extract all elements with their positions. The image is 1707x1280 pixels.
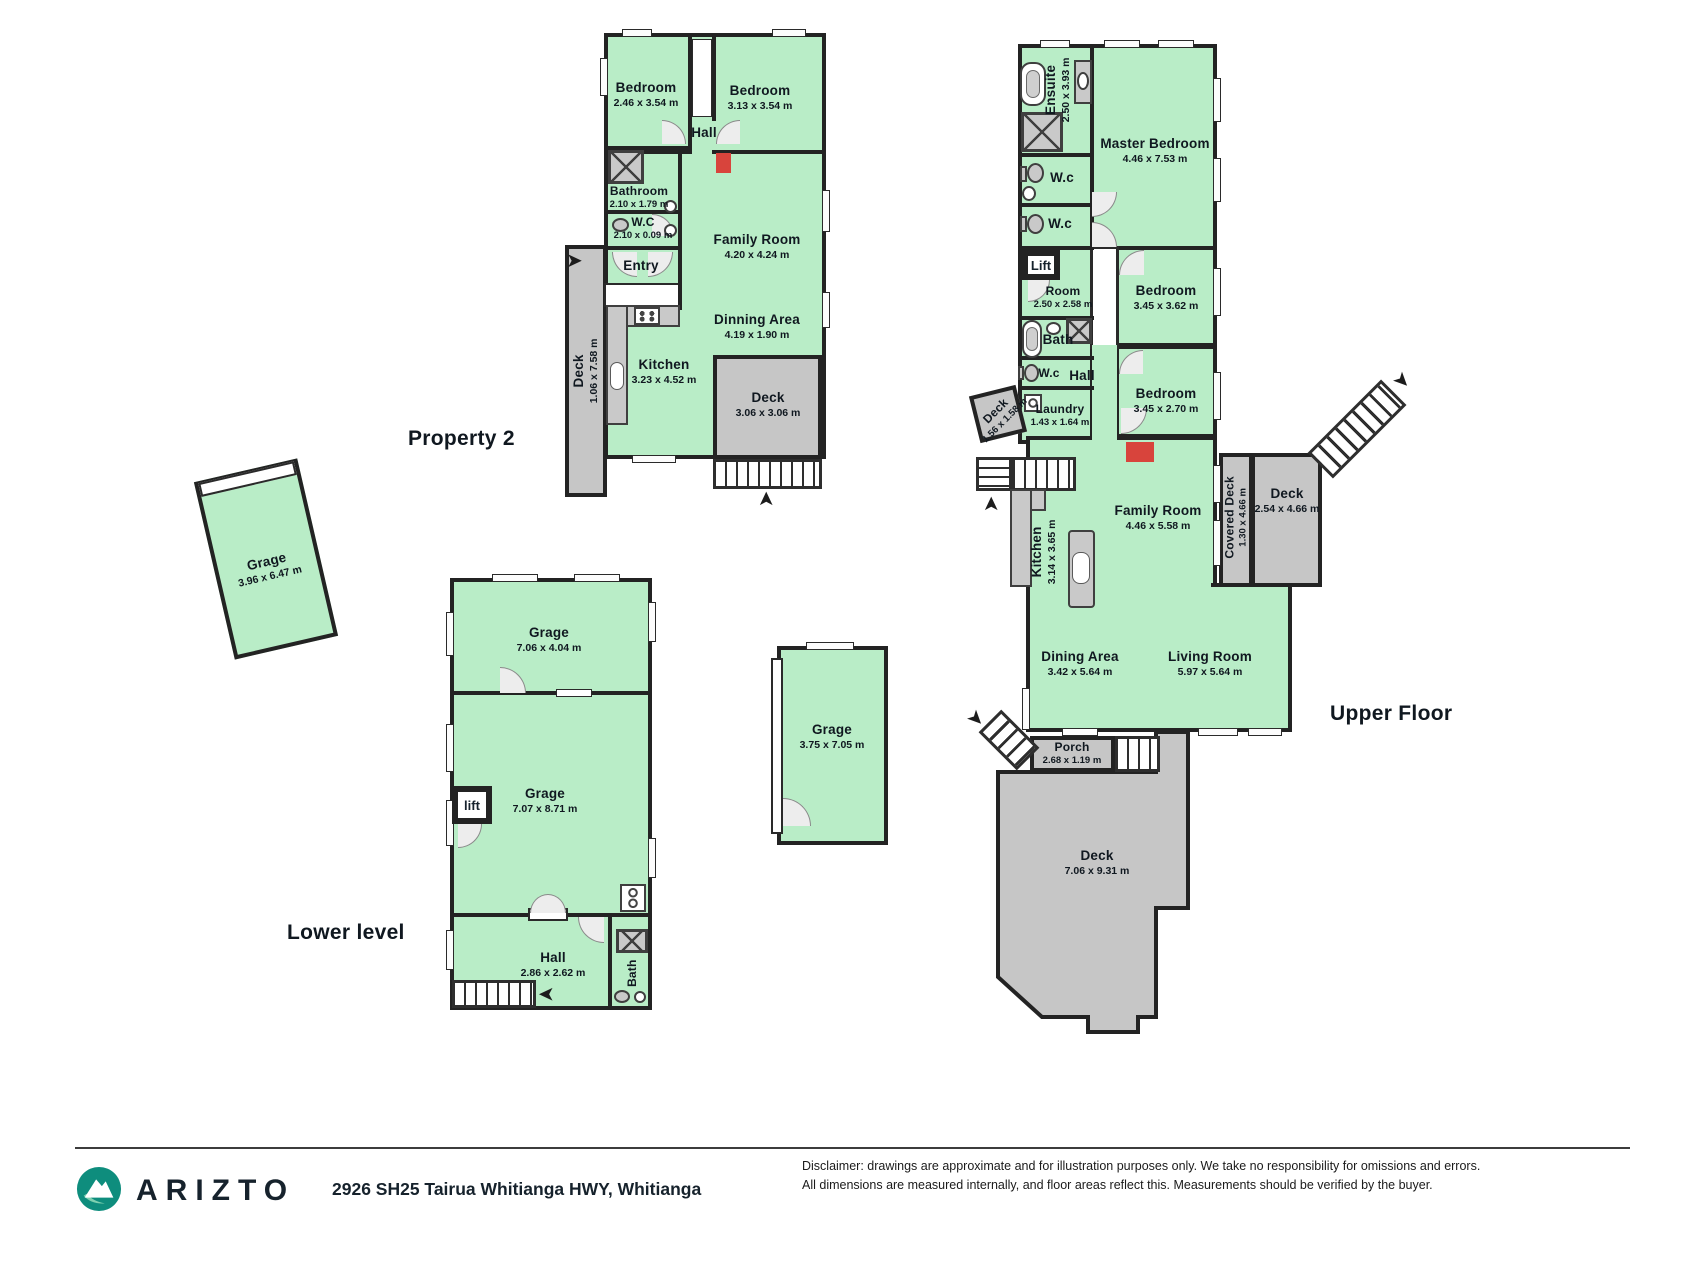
- plan-title-upper: Upper Floor: [1330, 702, 1480, 726]
- garage-b-door: [771, 658, 783, 834]
- p2-sink-icon: [610, 362, 624, 390]
- upper-wc1-toilet-icon: [1027, 163, 1044, 183]
- up-arrow-icon: ➤: [980, 496, 1000, 513]
- upper-window: [1213, 465, 1221, 503]
- deck-stairs-arrow-icon: ➤: [1389, 367, 1415, 393]
- p2-side-deck: [565, 245, 607, 497]
- p2-window: [822, 292, 830, 328]
- upper-wall: [1018, 386, 1094, 390]
- p2-window: [822, 190, 830, 232]
- lower-window: [492, 574, 538, 582]
- p2-window: [622, 29, 652, 37]
- p2-wall: [688, 37, 692, 149]
- p2-rear-deck: [713, 355, 822, 459]
- plan-title-lower: Lower level: [287, 921, 427, 945]
- lower-window: [446, 724, 454, 772]
- upper-bath-basin-icon: [1046, 322, 1061, 335]
- upper-deck: [1251, 453, 1322, 587]
- p2-window: [600, 58, 608, 96]
- upper-covered-deck: [1219, 453, 1253, 587]
- upper-porch-stairs: [1115, 736, 1160, 772]
- footer-divider: [75, 1147, 1630, 1149]
- upper-wc2-tank: [1020, 216, 1027, 232]
- upper-window: [1213, 372, 1221, 420]
- upper-porch-doorway: [1062, 728, 1098, 736]
- upper-fireplace: [1126, 442, 1154, 462]
- upper-wall: [1018, 153, 1094, 157]
- lower-wall: [608, 913, 612, 1010]
- upper-ensuite-shower-icon: [1021, 112, 1063, 152]
- upper-master-block: [1090, 44, 1217, 250]
- upper-ensuite-tub-icon: [1020, 62, 1046, 106]
- upper-window: [1022, 688, 1030, 730]
- lower-window: [574, 574, 620, 582]
- lower-window: [446, 612, 454, 656]
- disclaimer-line2: All dimensions are measured internally, …: [802, 1176, 1652, 1195]
- p2-entry-landing: [604, 283, 680, 307]
- brand-name: ARIZTO: [136, 1174, 295, 1208]
- upper-stairs: [1012, 457, 1076, 491]
- upper-open-plan-patch: [1032, 579, 1211, 589]
- garage-a: Grage 3.96 x 6.47 m: [194, 458, 338, 659]
- disclaimer: Disclaimer: drawings are approximate and…: [802, 1157, 1652, 1196]
- upper-laundry-washer-icon: [1024, 394, 1042, 412]
- arizto-logo-icon: [76, 1166, 122, 1212]
- upper-window: [1040, 40, 1070, 48]
- property-address: 2926 SH25 Tairua Whitianga HWY, Whitiang…: [332, 1179, 701, 1200]
- upper-window: [1248, 728, 1282, 736]
- lower-basin-icon: [634, 991, 646, 1003]
- lower-window: [648, 602, 656, 642]
- p2-hall-opening: [692, 146, 712, 158]
- lower-garage-top: [450, 578, 652, 695]
- upper-stairs-left: [976, 457, 1012, 491]
- plan-title-property2: Property 2: [408, 427, 538, 451]
- upper-kitchen-sink-icon: [1072, 552, 1090, 584]
- lower-window: [648, 838, 656, 878]
- stairs-arrow-icon: ➤: [538, 985, 555, 1005]
- p2-wall: [604, 246, 682, 250]
- lower-toilet-icon: [614, 990, 630, 1003]
- upper-wc3-toilet-icon: [1024, 364, 1039, 382]
- upper-landing-strip: [1010, 489, 1032, 587]
- upper-main-deck: [996, 726, 1196, 1038]
- upper-wall: [1018, 203, 1094, 207]
- up-arrow-icon: ➤: [755, 491, 775, 508]
- upper-wc1-basin-icon: [1022, 186, 1036, 201]
- p2-toilet-icon: [612, 218, 629, 232]
- garage-b-window: [806, 642, 854, 650]
- p2-closet: [692, 39, 712, 117]
- upper-window: [1213, 78, 1221, 122]
- upper-window: [1213, 158, 1221, 202]
- upper-lift-label: Lift: [1031, 258, 1051, 273]
- lower-door-gap: [556, 689, 592, 697]
- upper-window: [1158, 40, 1194, 48]
- upper-corridor: [1090, 246, 1119, 349]
- upper-wc2-toilet-icon: [1027, 214, 1044, 234]
- upper-wc1-tank: [1020, 166, 1027, 182]
- upper-window: [1198, 728, 1238, 736]
- p2-window: [772, 29, 806, 37]
- upper-window: [1213, 268, 1221, 316]
- lower-shower-icon: [616, 929, 648, 953]
- upper-hall-family-opening: [1092, 434, 1117, 444]
- lower-stairs: [452, 980, 536, 1008]
- upper-bath-shower-icon: [1066, 318, 1092, 344]
- p2-shower-icon: [608, 150, 644, 184]
- p2-rear-stairs: [713, 459, 822, 489]
- p2-basin-icon: [664, 200, 677, 213]
- upper-window: [1213, 520, 1221, 566]
- p2-wall: [712, 37, 716, 121]
- lower-window: [446, 930, 454, 970]
- upper-porch: [1030, 736, 1115, 772]
- lower-stove-icon: [620, 884, 646, 912]
- p2-basin-icon: [664, 224, 677, 237]
- disclaimer-line1: Disclaimer: drawings are approximate and…: [802, 1157, 1652, 1176]
- p2-fireplace: [716, 153, 731, 173]
- upper-living-block: [1026, 583, 1292, 732]
- p2-wall: [678, 150, 682, 310]
- p2-window: [632, 455, 676, 463]
- floorplan-canvas: Property 2 ➤ ➤ Bedroom 2.46 x 3.54 m Bed…: [0, 0, 1707, 1280]
- upper-hall-floor: [1092, 349, 1117, 440]
- upper-diagonal-stairs: [1308, 380, 1407, 479]
- entry-arrow-icon: ➤: [566, 250, 583, 270]
- lower-lift: lift: [452, 786, 492, 824]
- upper-lift: Lift: [1022, 250, 1060, 280]
- p2-stove-icon: [634, 307, 660, 325]
- upper-ensuite-basin-icon: [1077, 72, 1089, 90]
- lower-lift-label: lift: [464, 798, 480, 813]
- upper-bath-tub-icon: [1022, 320, 1042, 358]
- upper-window: [1104, 40, 1140, 48]
